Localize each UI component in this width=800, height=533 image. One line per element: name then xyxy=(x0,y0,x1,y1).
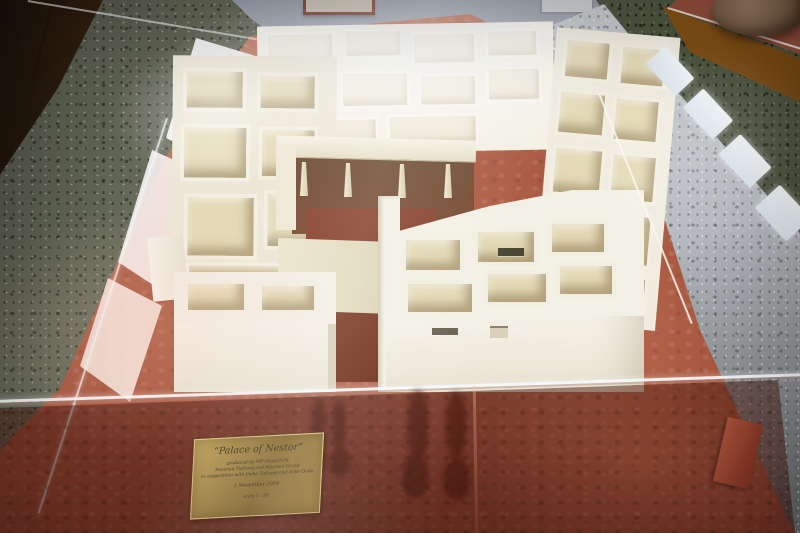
model-room xyxy=(554,87,610,139)
model-room xyxy=(560,36,614,84)
model-room xyxy=(556,262,616,298)
model-room xyxy=(404,280,476,316)
wall-slot xyxy=(432,328,458,335)
wall-notch xyxy=(490,326,508,338)
model-wall-side-face xyxy=(328,324,336,392)
doorway-slot xyxy=(498,248,524,256)
model-front-left-block xyxy=(174,272,336,392)
visitor-reflection-leg xyxy=(446,392,466,458)
model-room xyxy=(402,236,464,274)
model-room xyxy=(180,123,251,182)
visitor-reflection-foot xyxy=(444,458,470,500)
visitor-reflection-foot xyxy=(330,448,350,476)
model-room xyxy=(257,72,319,113)
model-room xyxy=(183,193,258,260)
model-room xyxy=(258,282,318,314)
visitor-reflection-leg xyxy=(332,400,346,450)
exhibit-plaque: “Palace of Nestor” produced by MP Maastr… xyxy=(190,432,324,519)
plaque-scale: scale 1 : 50 xyxy=(192,491,320,504)
visitor-reflection-foot xyxy=(402,456,428,498)
plaque-date: 1 November 2004 xyxy=(192,478,320,491)
model-room xyxy=(474,228,538,266)
megaron-jamb-wall xyxy=(276,146,296,230)
model-room xyxy=(184,280,248,314)
model-room xyxy=(183,67,247,112)
museum-exhibit-photo: “Palace of Nestor” produced by MP Maastr… xyxy=(0,0,800,533)
framed-picture xyxy=(303,0,375,15)
model-room xyxy=(548,220,608,256)
model-front-wall xyxy=(174,324,336,392)
visitor-reflection-leg xyxy=(408,390,428,460)
model-room xyxy=(484,270,550,306)
